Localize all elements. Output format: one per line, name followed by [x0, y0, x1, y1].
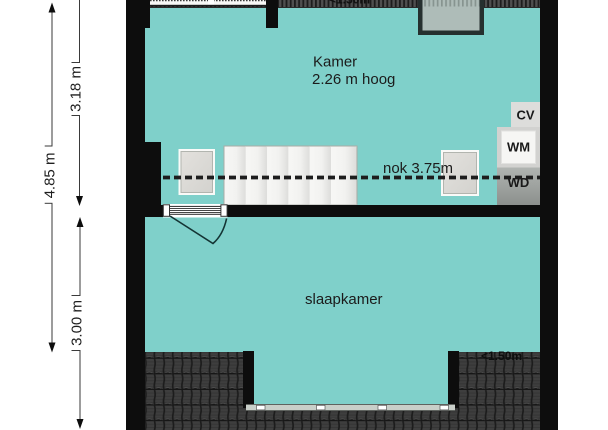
svg-text:<1.50m: <1.50m	[481, 349, 522, 363]
svg-text:4.85 m: 4.85 m	[42, 153, 59, 199]
svg-text:WM: WM	[507, 140, 530, 155]
svg-text:2.26 m hoog: 2.26 m hoog	[312, 71, 395, 88]
svg-text:nok 3.75m: nok 3.75m	[383, 160, 453, 177]
svg-text:Kamer: Kamer	[313, 54, 357, 71]
svg-text:CV: CV	[516, 108, 534, 123]
svg-text:slaapkamer: slaapkamer	[305, 291, 383, 308]
svg-text:3.00 m: 3.00 m	[68, 300, 85, 346]
svg-text:<1.50m: <1.50m	[329, 0, 370, 7]
svg-text:3.18 m: 3.18 m	[68, 66, 85, 112]
